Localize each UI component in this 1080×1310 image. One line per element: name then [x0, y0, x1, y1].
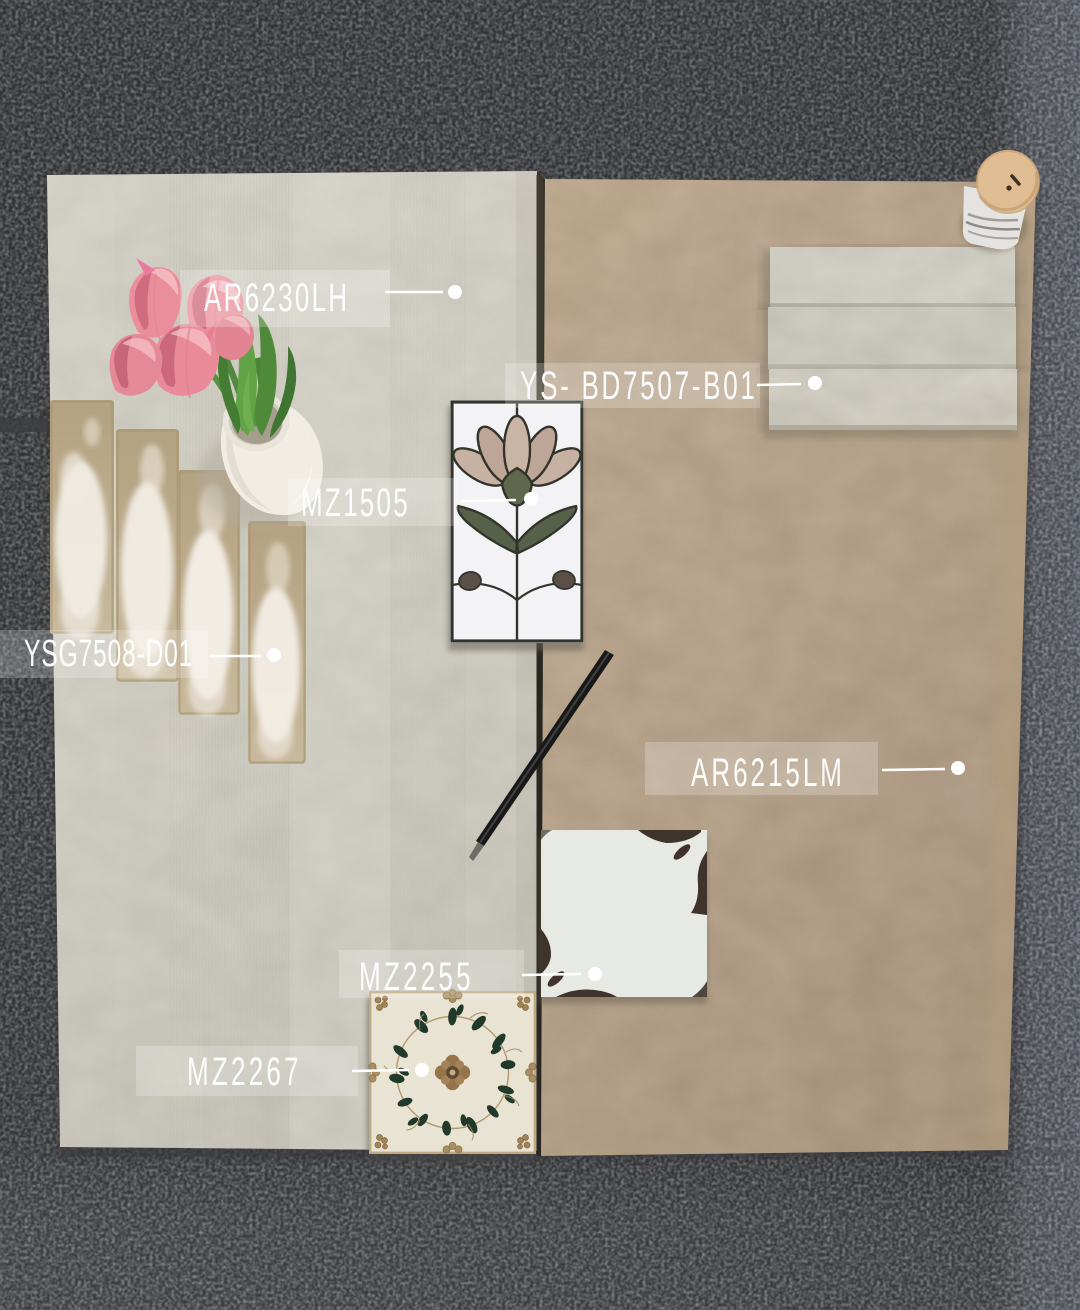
svg-text:MZ2255: MZ2255: [359, 954, 474, 999]
svg-text:AR6230LH: AR6230LH: [204, 275, 349, 320]
svg-text:MZ1505: MZ1505: [301, 480, 410, 525]
svg-text:YSG7508-D01: YSG7508-D01: [24, 632, 193, 675]
svg-text:YS- BD7507-B01: YS- BD7507-B01: [520, 363, 758, 408]
svg-text:AR6215LM: AR6215LM: [691, 750, 845, 795]
svg-text:MZ2267: MZ2267: [187, 1049, 302, 1094]
